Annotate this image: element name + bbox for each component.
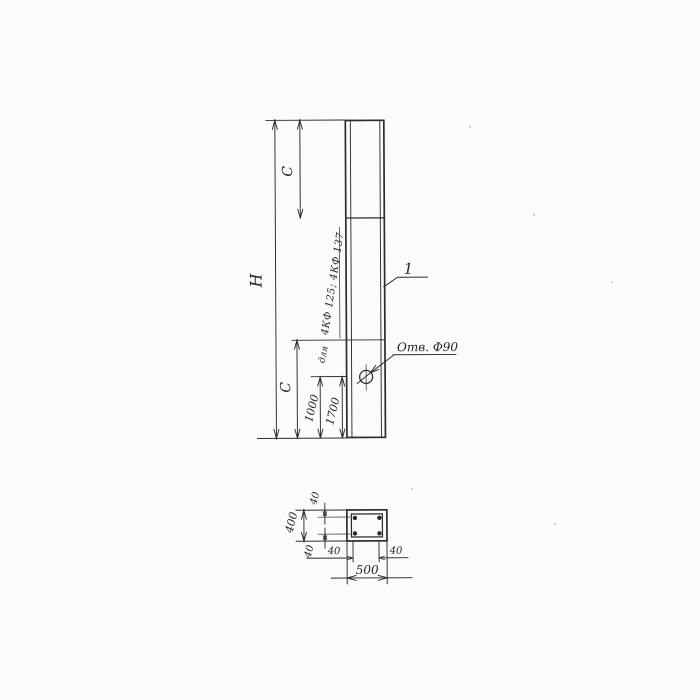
technical-drawing: H C C 1000 1700 для 4КФ 125; 4КФ 137 Отв… (0, 0, 700, 700)
rebar-dot (377, 516, 381, 520)
rebar-dot (377, 531, 381, 535)
dim-40-right-label: 40 (389, 546, 403, 557)
rebar-dot (353, 516, 357, 520)
dim-40-top-label: 40 (308, 490, 322, 507)
dim-c-top-label: C (280, 166, 296, 177)
column-left-edge-line (350, 121, 352, 436)
elevation-view: H C C 1000 1700 для 4КФ 125; 4КФ 137 Отв… (246, 118, 459, 439)
drawing-content: H C C 1000 1700 для 4КФ 125; 4КФ 137 Отв… (246, 118, 460, 584)
column-right-edge-line (380, 121, 382, 436)
drawing-sheet: H C C 1000 1700 для 4КФ 125; 4КФ 137 Отв… (0, 0, 700, 700)
note-types-label: 4КФ 125; 4КФ 137 (320, 231, 347, 336)
section-view: 400 40 40 40 40 500 (282, 490, 412, 585)
dim-500-label: 500 (356, 563, 379, 577)
paper-speck (611, 281, 613, 283)
dim-1000-label: 1000 (302, 393, 321, 423)
paper-speck (533, 214, 535, 216)
dim-400-label: 400 (282, 511, 300, 535)
hole-callout-label: Отв. Ф90 (397, 340, 458, 354)
dim-c-bottom-label: C (278, 382, 294, 393)
paper-speck (554, 523, 556, 525)
dim-1700-label: 1700 (323, 396, 342, 426)
paper-speck (411, 488, 413, 490)
dim-line-C-bottom (297, 339, 298, 438)
position-leader (384, 277, 428, 287)
dim-40-bottom-label: 40 (302, 543, 316, 560)
paper-speck (469, 126, 471, 128)
dim-40-left-label: 40 (327, 546, 341, 557)
dim-line-H (275, 119, 277, 439)
note-for-label: для (317, 345, 330, 364)
position-1-label: 1 (404, 260, 414, 278)
dim-line-C-top (300, 119, 301, 218)
dim-h-label: H (247, 272, 266, 288)
rebar-dot (353, 531, 357, 535)
